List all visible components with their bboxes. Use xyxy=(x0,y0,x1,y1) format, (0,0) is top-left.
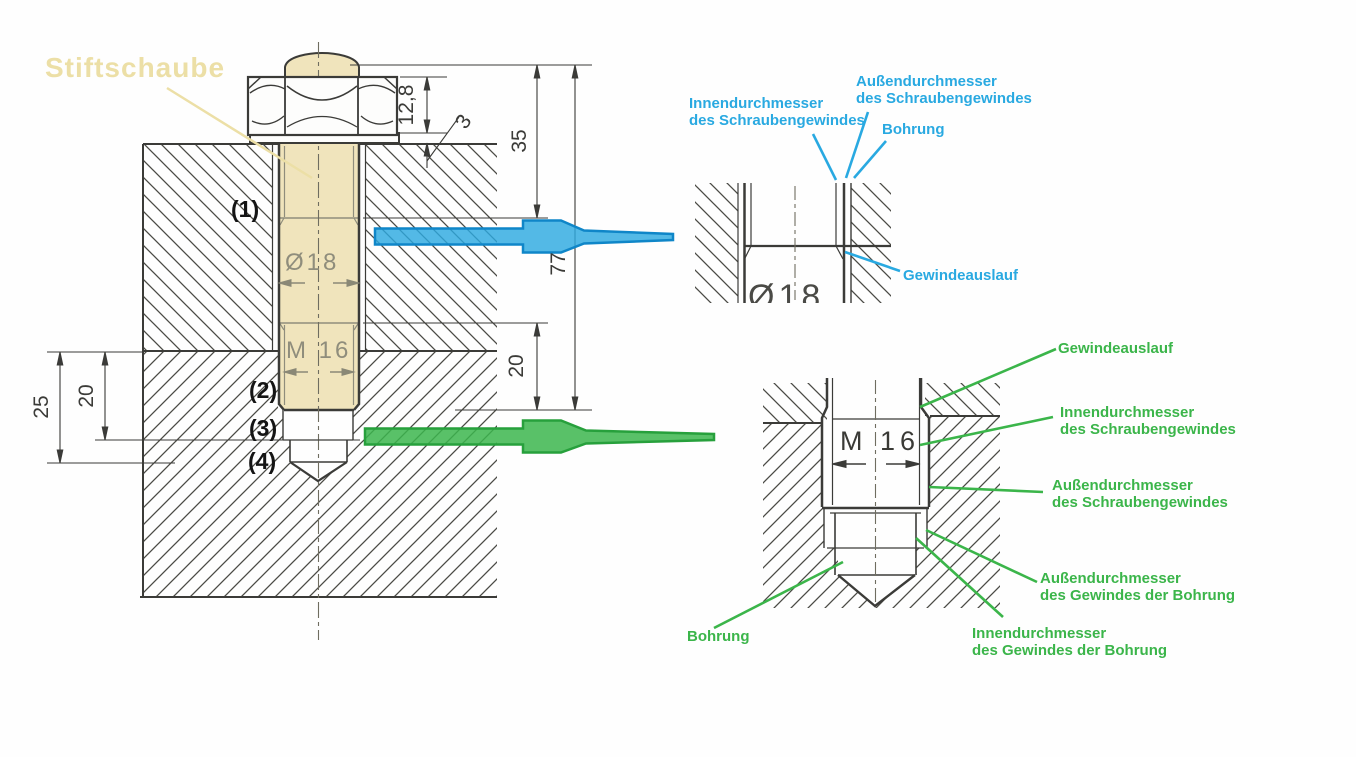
green-label-runout: Gewindeauslauf xyxy=(1058,340,1173,357)
green-label-bore-thread-inner: Innendurchmesser des Gewindes der Bohrun… xyxy=(972,625,1167,659)
detail-view-lower-thread xyxy=(763,378,1000,608)
green-label-screw-outer: Außendurchmesser des Schraubengewindes xyxy=(1052,477,1228,511)
green-label-screw-inner: Innendurchmesser des Schraubengewindes xyxy=(1060,404,1236,438)
dim-thread-size: M 16 xyxy=(286,337,351,365)
blue-detail-magnified-text: Ø18 xyxy=(748,278,858,303)
part-marker-2: (2) xyxy=(249,377,277,404)
stud-title-label: Stiftschaube xyxy=(45,52,225,84)
part-marker-1: (1) xyxy=(231,196,259,223)
blue-label-bore: Bohrung xyxy=(882,121,944,138)
green-detail-thread-text: M 16 xyxy=(840,426,920,457)
blue-label-inner-dia: Innendurchmesser des Schraubengewindes xyxy=(689,95,865,129)
green-label-bore-thread-outer: Außendurchmesser des Gewindes der Bohrun… xyxy=(1040,570,1235,604)
blue-detail-magnified-value: Ø18 xyxy=(748,278,824,303)
part-marker-4: (4) xyxy=(248,448,276,475)
dim-bore-depth: 25 xyxy=(30,395,54,418)
blue-label-outer-dia: Außendurchmesser des Schraubengewindes xyxy=(856,73,1032,107)
dim-nut-height: 12,8 xyxy=(395,85,419,126)
dim-total-length: 77 xyxy=(547,252,571,275)
dim-lower-thread-length: 20 xyxy=(505,354,529,377)
dim-shank-diameter: Ø18 xyxy=(285,249,339,277)
blue-label-runout: Gewindeauslauf xyxy=(903,267,1018,284)
green-label-bore: Bohrung xyxy=(687,628,749,645)
part-marker-3: (3) xyxy=(249,415,277,442)
dim-bore-thread-depth: 20 xyxy=(75,384,99,407)
technical-drawing-page: Stiftschaube (1) (2) (3) (4) 12,8 3 35 7… xyxy=(0,0,1356,757)
hex-nut xyxy=(248,77,397,135)
dim-upper-thread-length: 35 xyxy=(508,129,532,152)
